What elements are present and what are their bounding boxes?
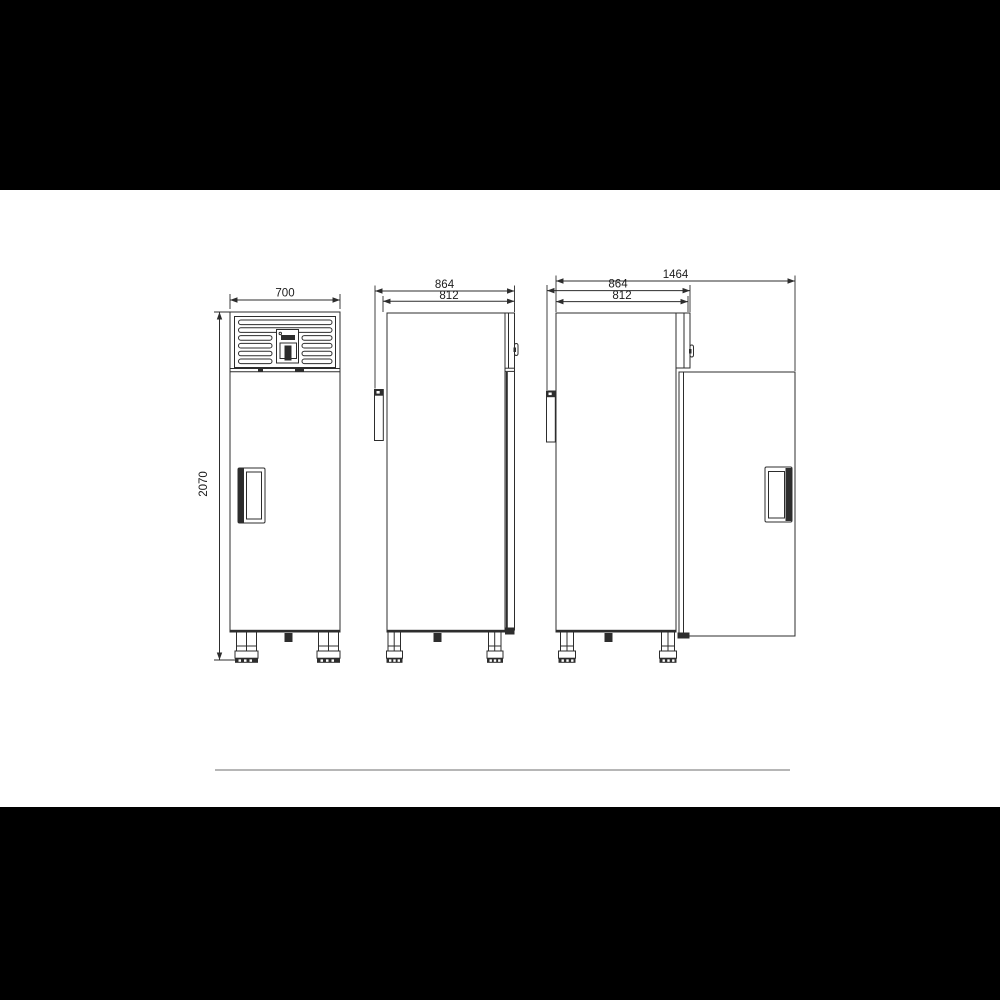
drawing-paper — [0, 190, 1000, 807]
technical-drawing-canvas: 700 2070 — [0, 0, 1000, 1000]
cabinet-base-edge — [387, 630, 505, 633]
dim-label-open-depth-total: 864 — [608, 279, 628, 291]
dim-label-open-depth-body: 812 — [612, 290, 631, 302]
drain-spout — [434, 633, 442, 642]
hinge-pin-mark — [514, 348, 517, 353]
content-divider — [215, 769, 790, 771]
dim-label-front-height: 2070 — [198, 471, 210, 497]
drain-spout — [285, 633, 293, 642]
dim-label-open-total-width: 1464 — [663, 269, 689, 281]
controller-display — [281, 335, 295, 340]
letterbox-bottom — [0, 807, 1000, 1000]
letterbox-top — [0, 0, 1000, 190]
screenshot-root: 700 2070 — [0, 0, 1000, 1000]
hinge-pin-mark — [689, 349, 692, 354]
drain-spout — [605, 633, 613, 642]
door-bottom-bracket — [678, 633, 690, 639]
dim-label-front-width: 700 — [275, 288, 294, 300]
divider-hinge-mark — [295, 369, 304, 372]
door-gasket-line — [506, 372, 508, 628]
divider-hinge-mark — [258, 369, 263, 372]
door-bottom-bracket — [505, 628, 515, 635]
controller-knob — [285, 346, 292, 361]
dim-label-side-depth-body: 812 — [439, 290, 458, 302]
temperature-controller — [277, 330, 299, 364]
